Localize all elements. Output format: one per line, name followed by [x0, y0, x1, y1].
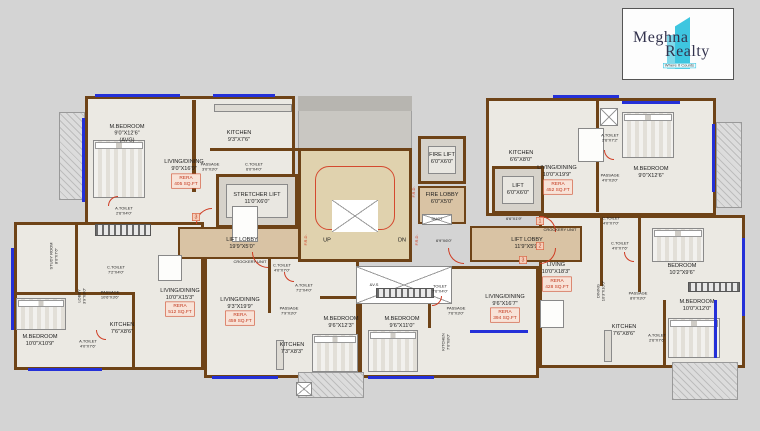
room-label-ctoilet-bml: C.TOILET4'0"X7'0" [273, 263, 291, 273]
rera-badge-bottom-left: RERA512 SQ.FT [165, 302, 194, 317]
room-label-atoilet-right: A.TOILET2'6"X7'6" [648, 333, 666, 343]
rera-badge-right: RERA428 SQ.FT [542, 277, 571, 292]
room-label-passage-bottom-left: PASSAGE10'6"X3'6" [101, 290, 120, 300]
rera-badge-top-right: RERA452 SQ.FT [543, 180, 572, 195]
room-label-atoilet-top-right: A.TOILET2'6"X7'2" [601, 133, 619, 143]
bed-furniture [312, 334, 358, 372]
entry-marker: 2 [536, 242, 544, 250]
bed-pillows [670, 320, 718, 327]
balcony-bottom-right [672, 362, 738, 400]
bed-furniture [16, 298, 66, 330]
room-label-passage-top-right: PASSAGE4'0"X3'0" [601, 173, 620, 183]
room-label-atoilet-top-left: A.TOILET2'6"X4'0" [115, 206, 133, 216]
room-label-passage-right: PASSAGE8'0"X3'0" [629, 291, 648, 301]
room-label-kitchen-bml: KITCHEN7'3"X8'3" [280, 341, 304, 355]
label-dim-beside-lift: 6'6"X1'9" [506, 217, 522, 222]
floor-plan-sheet: M.BEDROOM9'0"X12'6"(AVG) LIVING/DINING9'… [0, 0, 760, 431]
rera-badge-top-left: RERA405 SQ.FT [171, 174, 200, 189]
bed-pillows [624, 114, 672, 121]
bed-pillows [654, 230, 702, 237]
window [28, 368, 102, 371]
label-lift: LIFT6'0"X6'0" [507, 182, 529, 196]
window [82, 118, 85, 202]
room-label-ctoilet-top-right: C.TOILET4'0"X7'0" [602, 216, 620, 226]
room-label-study-bottom-left: STUDY ROOM8'0"X7'6" [49, 242, 59, 269]
logo-tagline: Where It Counts [663, 63, 696, 68]
label-duct: DUCT [431, 217, 442, 222]
bed-pillows [370, 332, 416, 339]
room-label-kitchen-bmr: KITCHEN7'0"X8'0" [441, 333, 451, 351]
wardrobe-furniture [95, 224, 151, 236]
rera-badge-bmr: RERA394 SQ.FT [490, 308, 519, 323]
bed-furniture [652, 228, 704, 262]
room-label-mbedroom-top-left: M.BEDROOM9'0"X12'6"(AVG) [109, 123, 144, 143]
room-label-living-bottom-left: LIVING/DINING10'0"X15'3" [160, 287, 199, 301]
bed-furniture [668, 318, 720, 358]
label-frd-left: F.R.D. [304, 234, 309, 245]
room-label-mbedroom-bottom-left: M.BEDROOM10'0"X10'9" [22, 333, 57, 347]
wall-segment [75, 222, 78, 292]
room-label-passage-bmr: PASSAGE7'6"X3'0" [447, 306, 466, 316]
room-label-living-bmr: LIVING/DINING9'6"X16'7" [485, 293, 524, 307]
room-label-living-bml: LIVING/DINING9'3"X19'9" [220, 296, 259, 310]
kitchen-counter [214, 104, 292, 112]
entry-marker: 3 [519, 256, 527, 264]
window [11, 248, 14, 330]
label-vent-shaft: &V.S [370, 283, 379, 288]
label-crockery-left: CROCKERY UNIT [234, 260, 267, 265]
room-label-kitchen-top-right: KITCHEN6'6"X8'0" [509, 149, 533, 163]
terrace-parapet [298, 96, 412, 111]
room-label-atoilet-bml: A.TOILET7'2"X4'0" [295, 283, 313, 293]
wardrobe-furniture [688, 282, 740, 292]
room-label-kitchen-bottom-left: KITCHEN7'6"X8'6" [110, 321, 134, 335]
label-dim-beside-stair: 6'9"X6'0" [436, 239, 452, 244]
window [553, 95, 619, 98]
label-stair-dn: DN [398, 237, 406, 244]
room-label-kitchen-top-left: KITCHEN9'3"X7'6" [227, 129, 251, 143]
label-frd-right: F.R.D. [415, 234, 420, 245]
room-label-ctoilet-top-left: C.TOILET6'0"X4'0" [245, 162, 263, 172]
meghna-realty-logo: Meghna Realty Where It Counts [622, 8, 734, 80]
wardrobe-furniture [376, 288, 434, 298]
room-label-dining-right: DINING10'3"X10'0" [596, 281, 606, 301]
entry-marker: 3 [192, 213, 200, 221]
label-fire-lift: FIRE LIFT6'0"X6'0" [429, 151, 455, 165]
room-label-living-top-left: LIVING/DINING9'0"X16'9" [164, 158, 203, 172]
window [212, 376, 278, 379]
window [213, 94, 275, 97]
wall-segment [600, 216, 603, 286]
dining-table-furniture [158, 255, 182, 281]
room-label-passage-top-left: PASSAGE3'0"X3'0" [201, 162, 220, 172]
bed-pillows [18, 300, 64, 307]
room-label-living-right: LIVING10'0"X18'3" [542, 261, 570, 275]
stair-landing-cross [332, 200, 378, 232]
bed-pillows [314, 336, 356, 343]
room-label-mbedroom-right: M.BEDROOM10'0"X12'0" [679, 298, 714, 312]
label-stretcher-lift: STRETCHER LIFT11'0"X6'0" [233, 191, 280, 205]
label-frd-firelobby: F.R.D. [412, 186, 417, 197]
window [742, 238, 745, 316]
wall-segment [210, 148, 298, 151]
label-lift-lobby-left: LIFT LOBBY19'9"X5'0" [226, 236, 258, 250]
room-label-mbedroom-bmr: M.BEDROOM9'6"X11'0" [384, 315, 419, 329]
label-fire-lobby: FIRE LOBBY6'0"X5'0" [426, 191, 459, 205]
bed-furniture [622, 112, 674, 158]
dining-table-furniture [578, 128, 604, 162]
rera-badge-bml: RERA459 SQ.FT [225, 311, 254, 326]
wall-segment [320, 296, 359, 299]
door-arc [448, 248, 464, 264]
room-label-bedroom-right: BEDROOM10'2"X9'6" [668, 262, 697, 276]
room-label-mbedroom-top-right: M.BEDROOM9'0"X12'6" [633, 165, 668, 179]
room-label-living-top-right: LIVING/DINING10'0"X19'9" [537, 164, 576, 178]
duct-box-bottom [296, 382, 312, 396]
wall-segment [638, 216, 641, 292]
balcony-right [716, 122, 742, 208]
room-label-lobby-bottom-left: LOBBY3'9"X3'0" [77, 288, 87, 304]
bed-furniture [368, 330, 418, 372]
room-label-ctoilet-bottom-left: C.TOILET7'2"X4'0" [107, 265, 125, 275]
window [622, 101, 680, 104]
room-label-mbedroom-bml: M.BEDROOM9'6"X12'3" [323, 315, 358, 329]
dining-table-furniture [540, 300, 564, 328]
room-label-atoilet-bottom-left: A.TOILET4'0"X7'6" [79, 339, 97, 349]
room-label-ctoilet-right: C.TOILET4'0"X7'6" [611, 241, 629, 251]
bed-furniture [93, 140, 145, 198]
duct-box-top-right [600, 108, 618, 126]
logo-brand-line2: Realty [665, 43, 710, 61]
entry-marker: 1 [536, 217, 544, 225]
window [470, 330, 528, 333]
window [712, 124, 715, 192]
wall-segment [268, 258, 271, 313]
label-stair-up: UP [323, 237, 331, 244]
window [368, 376, 434, 379]
room-label-toilet-bmr: TOILET7'6"X4'0" [432, 284, 448, 294]
window [95, 94, 180, 97]
label-crockery-right: CROCKERY UNIT [544, 228, 577, 233]
room-label-kitchen-right: KITCHEN7'6"X8'6" [612, 323, 636, 337]
room-label-passage-bml: PASSAGE7'9"X3'0" [280, 306, 299, 316]
